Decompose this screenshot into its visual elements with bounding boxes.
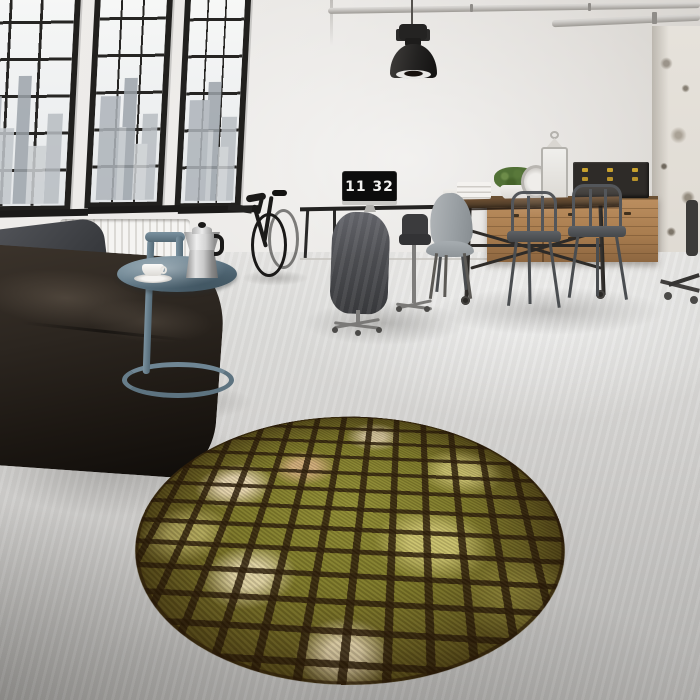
caster-wheel <box>332 327 338 333</box>
pipe-flange <box>652 12 657 24</box>
chair-leg <box>596 238 599 296</box>
table-stretcher <box>470 244 602 247</box>
caster-wheel <box>664 292 672 300</box>
grey-coat-on-chair <box>329 211 391 315</box>
lantern-ring <box>550 131 559 139</box>
metal-armchair-back <box>572 184 622 228</box>
brass-latch <box>582 168 588 172</box>
lamp-inner-rim <box>396 70 431 79</box>
city-skyline <box>0 65 70 205</box>
monitor-flip-clock: 11 32 <box>342 171 397 202</box>
side-table-tray <box>117 256 237 292</box>
office-chair-arm-partial <box>686 200 698 256</box>
clock-time: 11 32 <box>343 176 396 198</box>
brass-latch <box>607 168 613 172</box>
pipe-joint <box>470 4 473 12</box>
book-stack <box>457 182 491 199</box>
chair-slat <box>604 189 607 227</box>
chair-slat <box>527 196 530 232</box>
cup-handle <box>160 266 167 274</box>
drawer-handle <box>624 212 631 215</box>
box-gap <box>622 162 624 198</box>
caster-wheel <box>355 330 361 336</box>
metal-armchair-back <box>511 191 557 233</box>
caster-wheel <box>424 306 430 312</box>
city-skyline <box>93 67 163 200</box>
chair-slat <box>589 189 592 227</box>
caster-wheel <box>396 306 402 312</box>
chair-post <box>412 245 416 303</box>
brass-latch <box>632 168 638 172</box>
factory-window-2 <box>84 0 174 208</box>
monitor-chin <box>342 201 397 205</box>
caster-wheel <box>690 296 698 304</box>
factory-window-3 <box>174 0 251 209</box>
side-table-base-ring <box>122 362 234 398</box>
loft-room-photo: 11 32 <box>0 0 700 700</box>
city-skyline <box>183 72 241 201</box>
caster-wheel <box>376 327 382 333</box>
bicycle-front-wheel <box>251 213 287 277</box>
office-chair-seat <box>399 234 431 245</box>
rug-shadow <box>150 430 570 660</box>
chair-slat <box>541 196 544 232</box>
office-chair-back <box>402 214 428 236</box>
bicycle-saddle <box>272 190 287 196</box>
factory-window-1 <box>0 0 82 213</box>
pipe-joint <box>588 3 591 11</box>
molded-chair-seat <box>426 241 474 257</box>
moka-pot-knob <box>198 222 206 228</box>
